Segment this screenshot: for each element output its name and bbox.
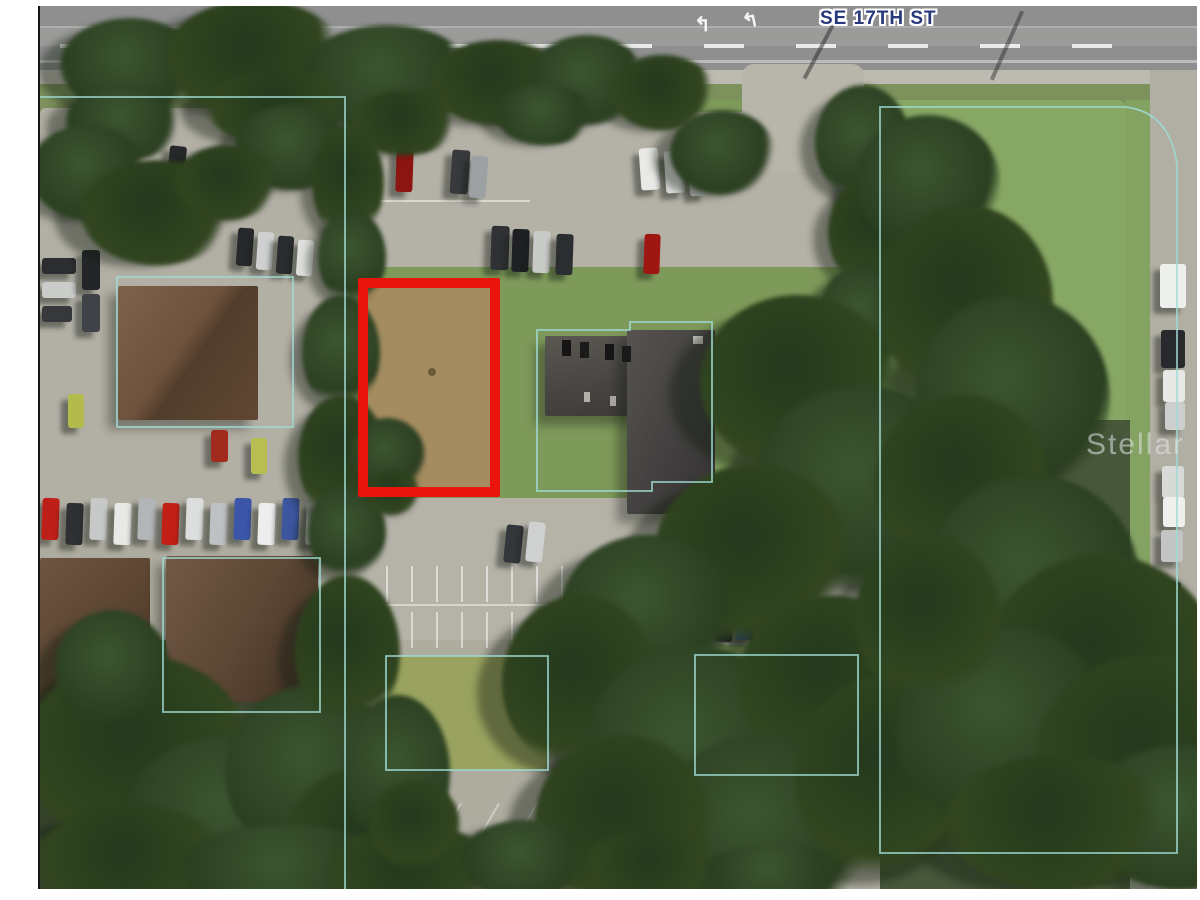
parcel-line [880, 107, 1177, 853]
photo-border-left [38, 6, 40, 889]
watermark: Stellar MLS [1086, 428, 1197, 462]
parcel-line [386, 656, 548, 770]
parcel-line [163, 558, 320, 712]
parcel-line [40, 97, 345, 889]
parcel-line [695, 655, 858, 775]
parcel-line [117, 277, 293, 427]
parcel-line [537, 322, 712, 491]
aerial-map-screenshot: ↰↰ SE 17TH ST Stellar MLS [0, 0, 1200, 900]
street-label: SE 17TH ST [820, 8, 937, 30]
aerial-photo: ↰↰ SE 17TH ST Stellar MLS [40, 6, 1197, 889]
parcel-boundary-lines [40, 6, 1197, 889]
subject-parcel-outline [358, 278, 500, 497]
